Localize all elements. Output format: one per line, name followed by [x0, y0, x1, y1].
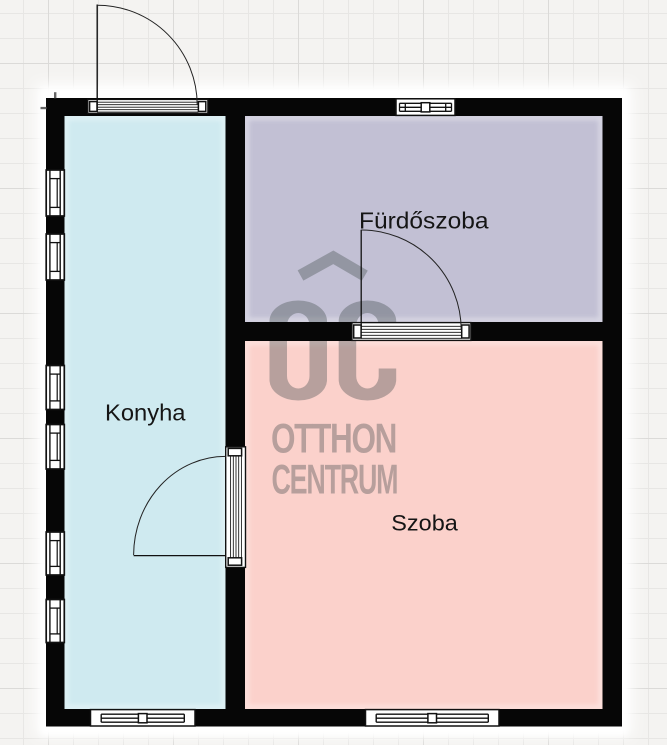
svg-text:Szoba: Szoba: [391, 511, 458, 536]
svg-text:Konyha: Konyha: [105, 400, 186, 426]
svg-text:OTTHON: OTTHON: [271, 414, 397, 462]
svg-text:Fürdőszoba: Fürdőszoba: [359, 207, 489, 233]
svg-text:CENTRUM: CENTRUM: [272, 457, 399, 503]
